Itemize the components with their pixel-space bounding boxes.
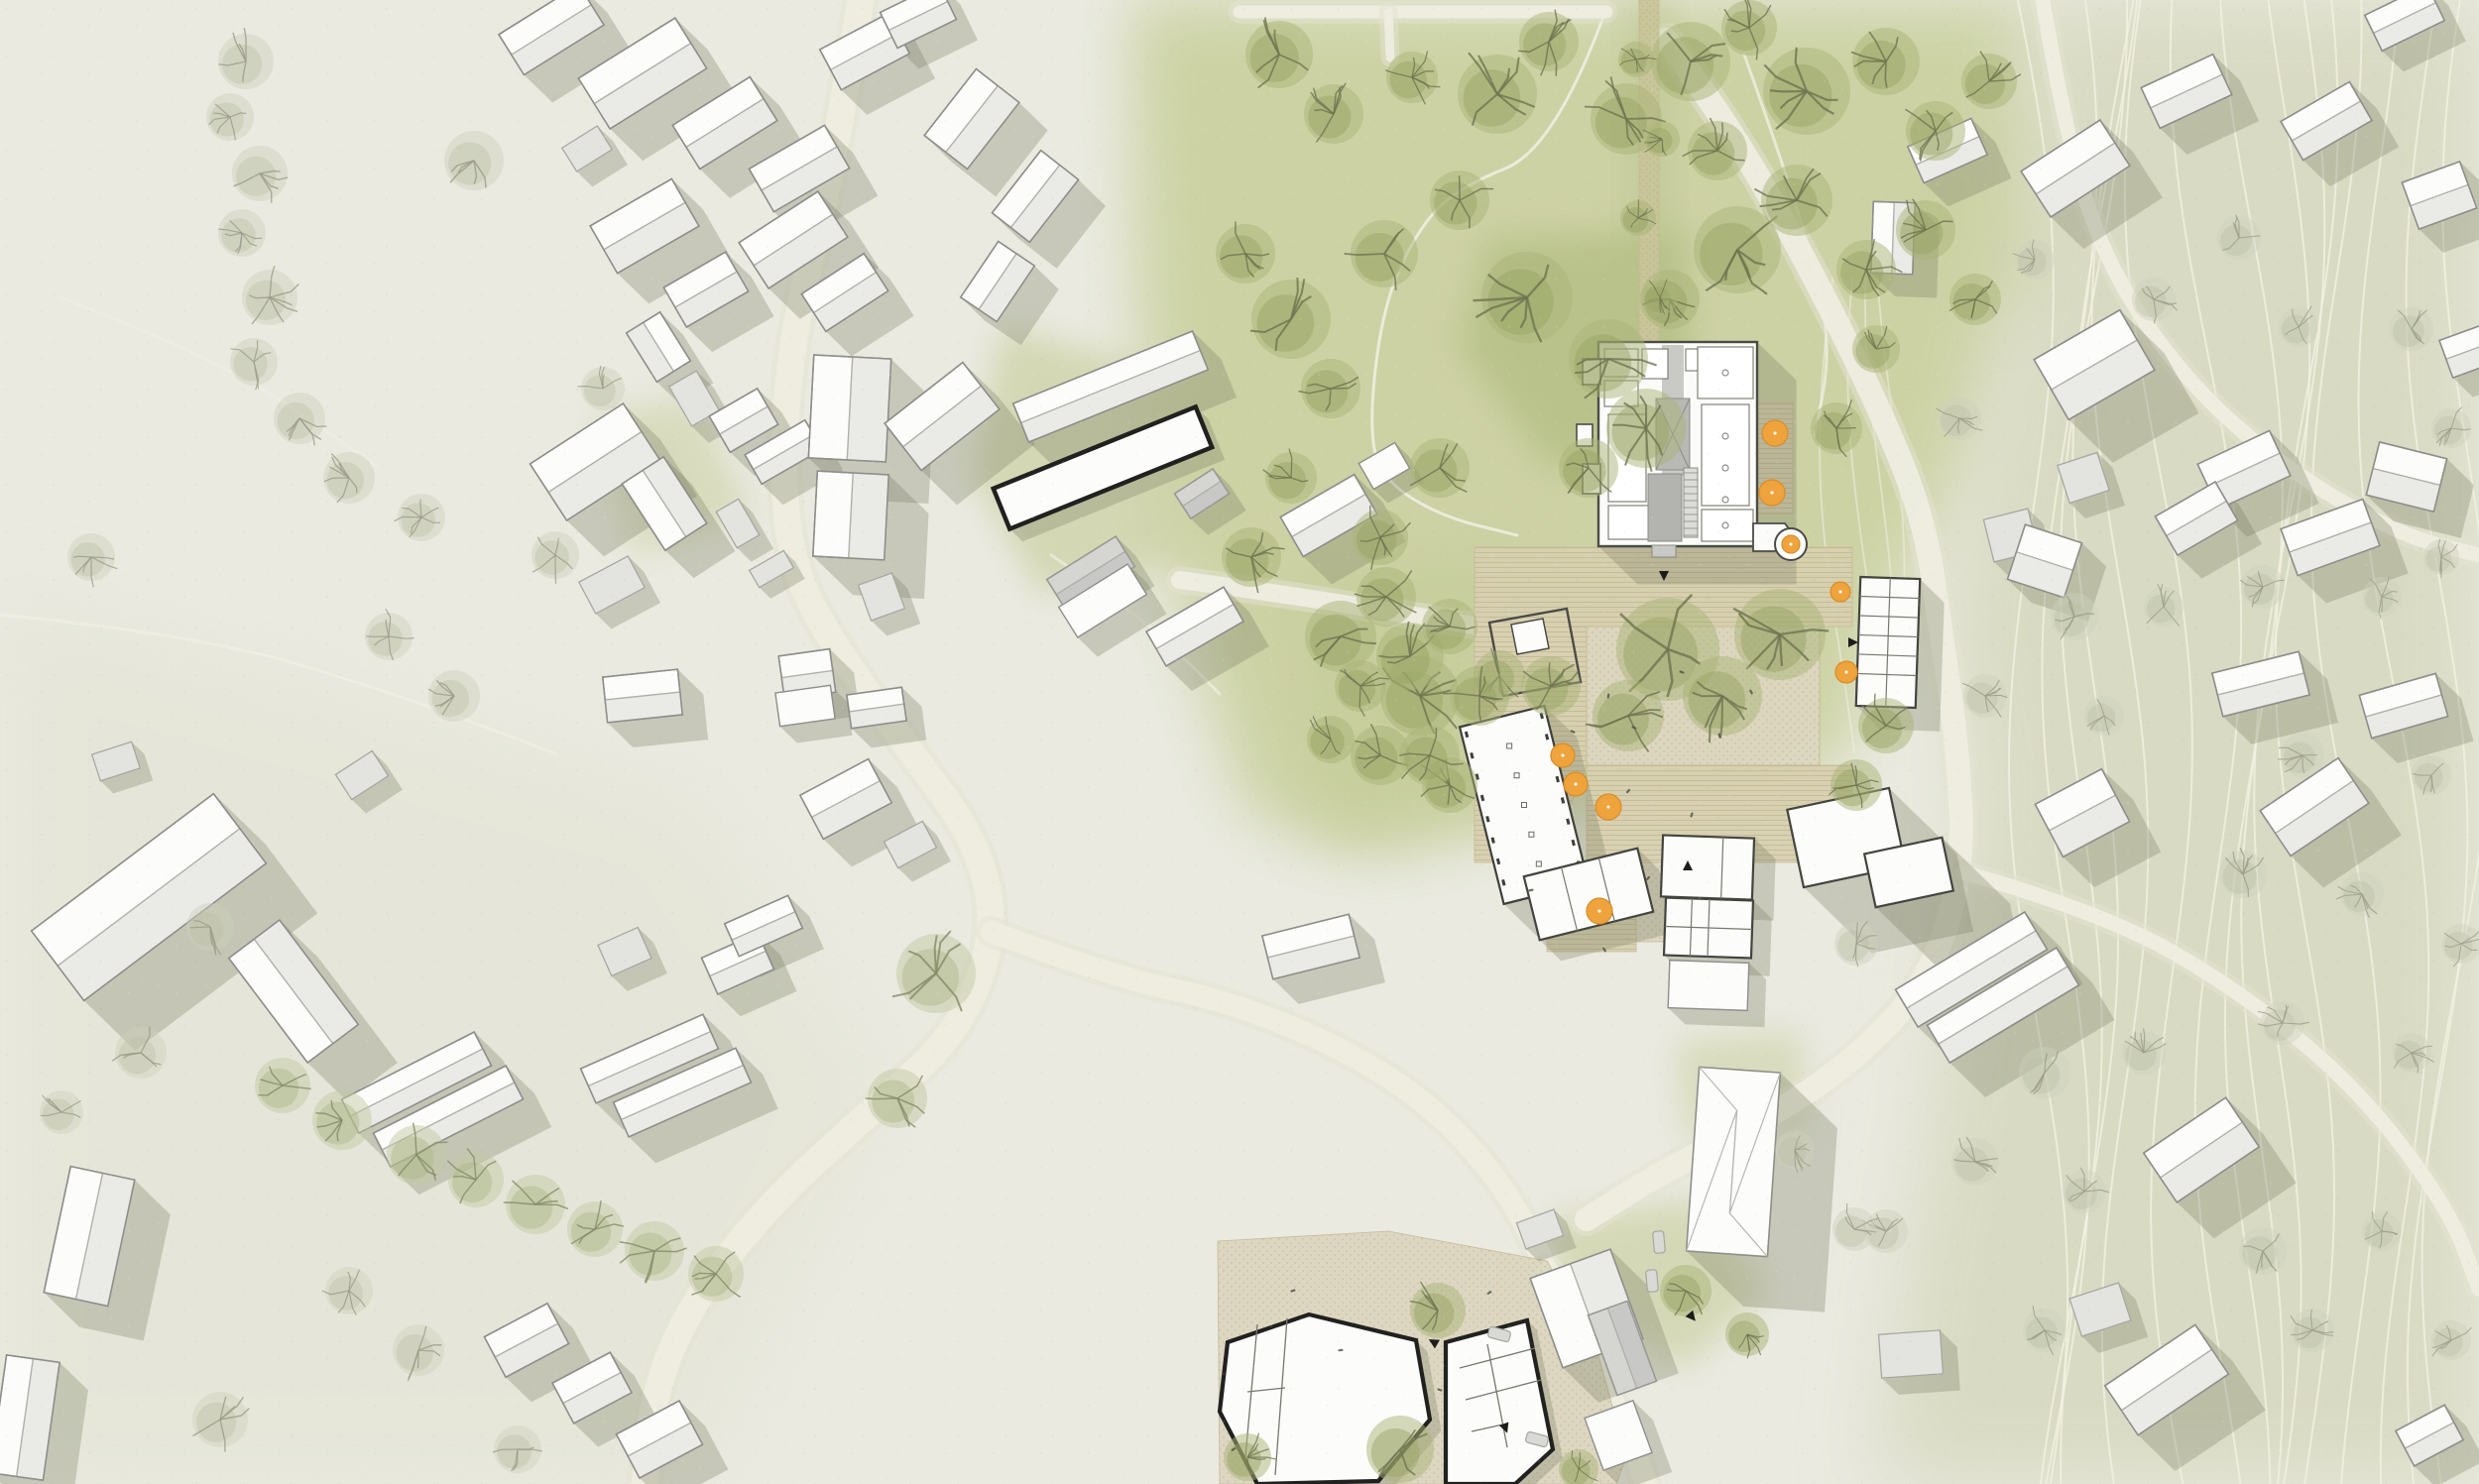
tree-canopy-inner [327,462,364,499]
tree-canopy-inner [2054,602,2088,636]
tree-canopy-inner [401,503,435,537]
tree-p [230,338,278,390]
tree-canopy-inner [452,1163,492,1202]
tree-branch [555,555,556,584]
tree-canopy-inner [1778,1138,1807,1167]
roof-shaded-half [849,473,888,560]
tree-canopy-inner [1740,606,1806,671]
building-body [1661,835,1754,899]
tree-o [1521,656,1581,716]
tree-p [242,266,298,325]
tree-canopy-inner [1390,61,1427,98]
parasol [1587,898,1612,924]
parasol [1759,480,1785,506]
tree-p [67,533,117,587]
garden-shed [1511,619,1549,654]
building-hip-60 [1687,1067,1781,1256]
parasol-pole [1773,431,1776,434]
building-body [1668,961,1749,1011]
parasol-pole [1838,590,1841,593]
tree-s [312,1090,372,1150]
parasol-pole [1597,909,1600,912]
tree-canopy-inner [1563,449,1605,492]
tree-branch [1345,254,1384,255]
road-park-top-spur [1388,12,1390,57]
tree-canopy-inner [391,1136,433,1179]
tree-canopy-inner [2023,1057,2060,1093]
parasol [1551,743,1575,767]
site-plan-stage [0,0,2479,1484]
tree-canopy-inner [1835,1215,1867,1247]
tree-canopy-inner [70,542,105,577]
parasol-pole [1606,805,1609,808]
site-plan-svg [0,0,2479,1484]
tree-p [444,131,504,190]
tree-canopy-inner [278,402,314,439]
building-h-23 [813,471,888,560]
tree-p [40,1090,83,1134]
tree-branch [2302,755,2317,756]
parasol-pole [1789,542,1792,545]
tree-canopy-inner [584,375,616,406]
tree-canopy-inner [1356,233,1404,282]
tree-p [578,366,625,410]
tree-p [206,93,254,141]
tree-p [274,393,326,445]
tree-canopy-inner [1305,370,1348,412]
building-w-92 [1668,961,1749,1011]
tree-canopy-inner [510,1186,552,1228]
parasol [1762,420,1788,446]
parked-car [1646,1270,1659,1293]
main-south-core [1648,474,1682,541]
tree-canopy-inner [328,1276,363,1311]
tree-o [1949,274,2001,325]
parasol [1782,535,1800,553]
tree-o [1763,48,1850,135]
tree-canopy-inner [1857,41,1906,89]
tree-canopy-inner [368,622,403,656]
tree-canopy-inner [397,1334,433,1371]
tree-p [531,531,579,584]
tree-o [1410,438,1470,498]
tree-canopy-inner [1664,1275,1701,1312]
tree-p [2084,696,2124,736]
building-h-28 [847,687,906,728]
tree-p [365,609,414,660]
tree-p [323,452,375,504]
tree-canopy-inner [2282,315,2310,344]
tree-p [2362,1211,2402,1251]
building-w-27 [775,685,835,726]
building-f-61 [1879,1330,1944,1378]
tree-o [1852,325,1900,373]
tree-branch [866,1098,897,1099]
tree-p [232,146,288,203]
tree-canopy-inner [497,1434,531,1469]
tree-o [1660,1265,1712,1316]
tree-canopy-inner [1434,181,1476,224]
tree-canopy-inner [43,1098,74,1130]
tree-canopy-inner [872,1080,914,1122]
tree-p [2019,1047,2070,1098]
tree-canopy-inner [2426,546,2452,572]
tree-branch [1770,90,1807,91]
tree-canopy-inner [1692,132,1734,174]
tree-canopy-inner [2222,859,2257,894]
tree-p [2291,1309,2334,1352]
tree-p [218,28,274,89]
main-stair [1684,468,1698,537]
footpath-field-path-2 [59,297,377,466]
tree-branch [418,1350,419,1368]
tree-canopy-inner [2284,742,2315,773]
parasol-pole [1561,753,1564,756]
tree-o [1559,438,1618,498]
tree-canopy-inner [1371,1428,1420,1477]
tree-o [1651,22,1730,101]
tree-p [2239,1227,2287,1275]
tree-o [1422,599,1477,654]
tree-canopy-inner [1360,578,1403,621]
main-room [1702,510,1753,541]
building-nt-90 [1661,835,1754,899]
main-room [1686,349,1698,371]
tree-p [218,209,266,257]
parasol [1595,794,1621,820]
main-entry-step [1652,545,1676,557]
building-body [775,685,835,726]
parasol [1830,582,1850,602]
road-market-link [992,932,1547,1269]
tree-canopy-inner [1226,538,1268,581]
tree-p [395,494,446,541]
tree-s [688,1246,744,1302]
tree-canopy-inner [2393,315,2424,347]
parasol-pole [1574,782,1577,785]
parasol [1835,661,1857,683]
tree-o [1725,1313,1769,1358]
tree-branch [2382,597,2383,612]
building-body [1879,1330,1944,1378]
main-room [1702,404,1749,506]
tree-canopy-inner [1426,610,1466,649]
tree-o [1307,716,1355,763]
tree-canopy-inner [692,1257,732,1297]
main-room [1608,506,1650,539]
tree-p [2412,755,2451,795]
tree-branch [1460,175,1461,200]
tree-canopy-inner [1689,671,1746,729]
building-nt-91 [1664,897,1753,958]
tree-canopy-inner [1381,635,1430,684]
tree-p [428,670,480,722]
tree-canopy-inner [1700,223,1762,285]
road-casing-market-link [992,932,1547,1269]
parasol-pole [1844,670,1847,673]
tree-canopy-inner [1941,404,1972,436]
building-nt-93 [1856,577,1921,708]
tree-canopy-inner [233,347,268,382]
tree-canopy-inner [1257,294,1315,352]
tree-p [2390,307,2433,351]
building-h-26 [603,669,682,723]
tree-branch [1638,199,1639,218]
tree-s [892,931,976,1013]
parked-car [1653,1231,1666,1254]
main-room [1698,347,1753,399]
tree-canopy-inner [189,912,224,947]
tree-p [2051,593,2098,640]
tree-canopy-inner [1308,95,1351,138]
roof-shaded-half [847,357,890,462]
parasol [1564,772,1588,796]
parasol-pole [1770,491,1773,494]
tree-o [1366,1416,1434,1483]
building-h-22 [808,355,890,462]
tree-canopy-inner [1815,412,1851,449]
